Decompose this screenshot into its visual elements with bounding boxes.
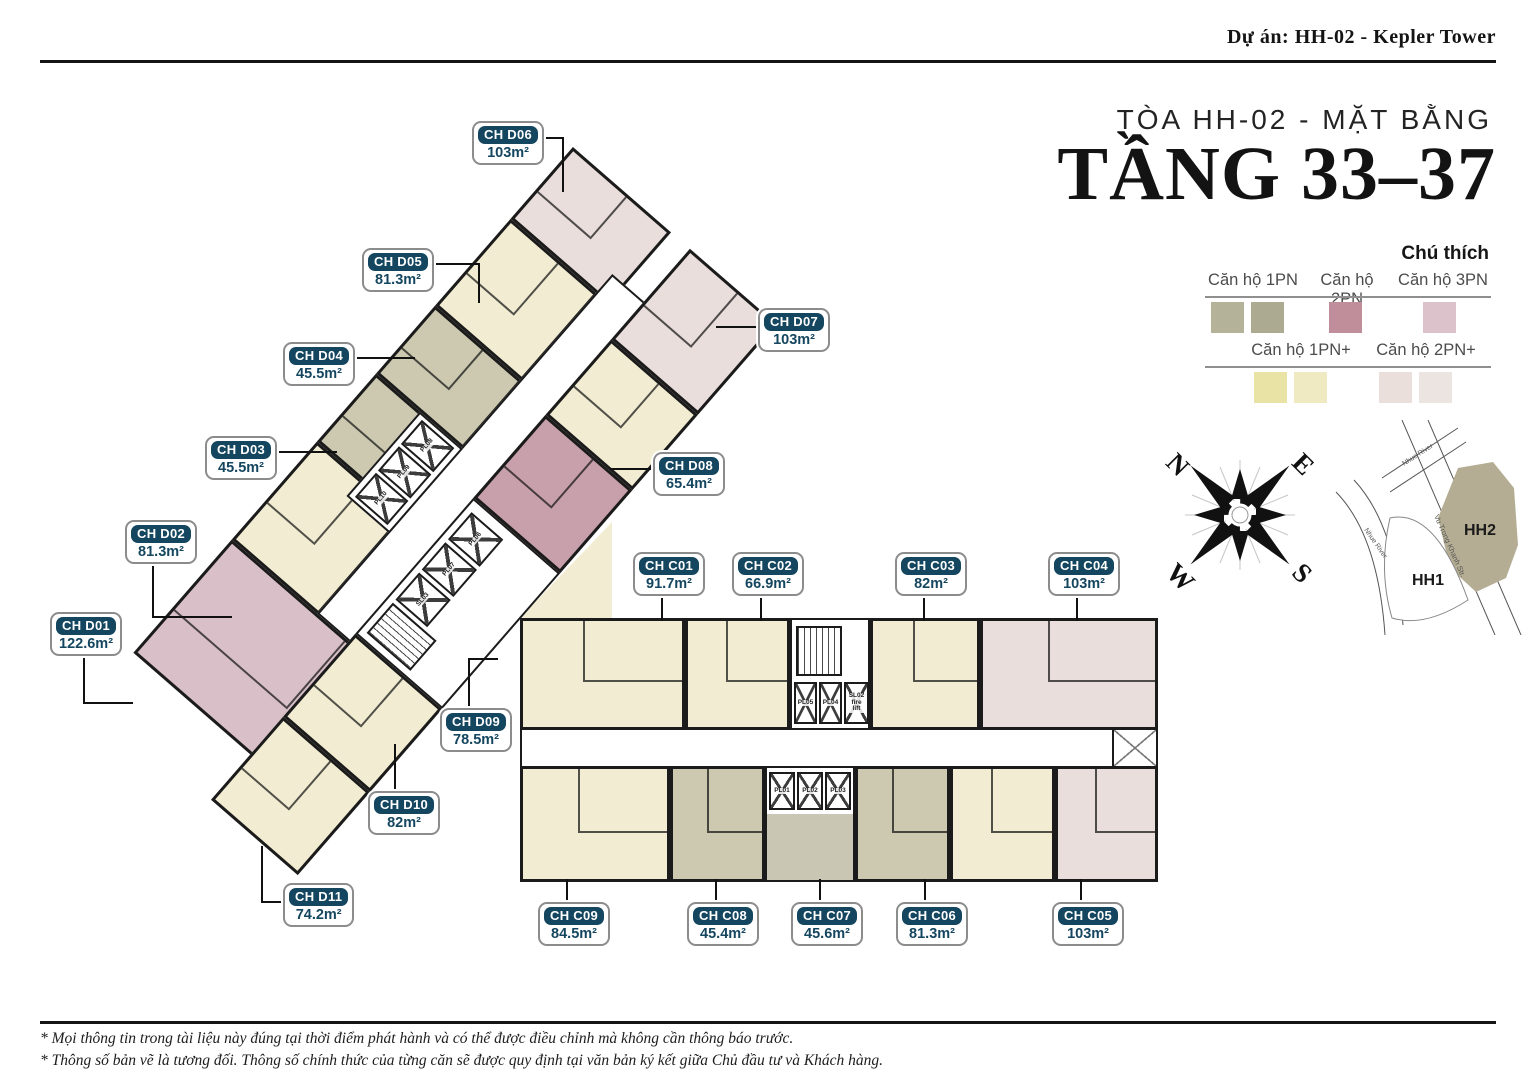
compass-n: N <box>1160 447 1195 482</box>
unit-area: 103m² <box>1058 926 1118 942</box>
header-rule <box>40 60 1496 63</box>
footer-rule <box>40 1021 1496 1024</box>
unit-code: CH D06 <box>478 126 538 144</box>
apartment-c06 <box>950 766 1055 882</box>
footer-note-2: * Thông số bản vẽ là tương đối. Thông số… <box>40 1052 883 1070</box>
legend-heading: Chú thích <box>1401 243 1489 265</box>
entrance-lobby <box>767 814 853 880</box>
unit-label-d08: CH D0865.4m² <box>653 452 725 496</box>
compass-s: S <box>1286 557 1318 589</box>
unit-area: 81.3m² <box>131 544 191 560</box>
unit-code: CH D10 <box>374 796 434 814</box>
c-wing-stairs <box>796 626 842 676</box>
connector-d11 <box>261 846 263 903</box>
unit-area: 103m² <box>478 145 538 161</box>
lift-label: PL02 <box>801 788 819 795</box>
lift-label: PL08 <box>419 437 436 455</box>
c-wing-core-top: PL05 PL04 SL02 fire lift <box>790 618 870 730</box>
swatch-1pn-b <box>1251 302 1284 333</box>
unit-label-c08: CH C0845.4m² <box>687 902 759 946</box>
unit-label-d04: CH D0445.5m² <box>283 342 355 386</box>
connector-d10 <box>394 744 396 792</box>
apartment-c05 <box>1055 766 1158 882</box>
unit-label-c04: CH C04103m² <box>1048 552 1120 596</box>
unit-area: 78.5m² <box>446 732 506 748</box>
compass-e: E <box>1286 447 1320 481</box>
apartment-c08 <box>670 766 765 882</box>
apartment-c03 <box>870 618 980 730</box>
swatch-2pn <box>1329 302 1362 333</box>
unit-label-c05: CH C05103m² <box>1052 902 1124 946</box>
unit-area: 45.6m² <box>797 926 857 942</box>
connector-d11 <box>261 901 285 903</box>
unit-code: CH C08 <box>693 907 753 925</box>
connector-d07 <box>716 326 760 328</box>
lift-label: PL04 <box>822 700 840 707</box>
unit-area: 65.4m² <box>659 476 719 492</box>
connector-c08 <box>715 879 717 903</box>
unit-code: CH D11 <box>289 888 348 906</box>
footer-note-1: * Mọi thông tin trong tài liệu này đúng … <box>40 1030 793 1048</box>
connector-c05 <box>1080 879 1082 903</box>
legend-label-1pn-plus: Căn hộ 1PN+ <box>1243 341 1359 360</box>
legend-divider <box>1205 366 1491 368</box>
swatch-2pn-plus-b <box>1419 372 1452 403</box>
connector-d01 <box>83 702 133 704</box>
unit-code: CH C07 <box>797 907 857 925</box>
unit-area: 122.6m² <box>56 636 116 652</box>
swatch-1pn-plus-b <box>1294 372 1327 403</box>
lift-label: PL06 <box>467 531 484 549</box>
apartment-c09 <box>520 766 670 882</box>
unit-code: CH D09 <box>446 713 506 731</box>
c-wing: PL05 PL04 SL02 fire lift PL01 PL02 PL03 <box>520 618 1158 882</box>
unit-label-d11: CH D1174.2m² <box>283 883 354 927</box>
unit-code: CH D01 <box>56 617 116 635</box>
location-map: HH2 HH1 Vu Trong Khanh Str. Nhue River N… <box>1330 420 1530 635</box>
lift-pl02: PL02 <box>797 772 823 810</box>
c-wing-core-bottom: PL01 PL02 PL03 <box>765 766 855 882</box>
unit-area: 45.4m² <box>693 926 753 942</box>
unit-code: CH C03 <box>901 557 961 575</box>
unit-area: 81.3m² <box>902 926 962 942</box>
unit-area: 82m² <box>901 576 961 592</box>
c-wing-corridor <box>520 728 1158 768</box>
legend-label-3pn: Căn hộ 3PN <box>1395 271 1491 290</box>
unit-code: CH C09 <box>544 907 604 925</box>
compass-rose-icon: N E W S <box>1152 430 1327 600</box>
lift-label: PL03 <box>829 788 847 795</box>
unit-code: CH D02 <box>131 525 191 543</box>
connector-d06 <box>562 137 564 192</box>
unit-label-d02: CH D0281.3m² <box>125 520 197 564</box>
unit-area: 103m² <box>1054 576 1114 592</box>
legend-row-1: Căn hộ 1PN Căn hộ 2PN Căn hộ 3PN <box>1205 271 1491 337</box>
unit-label-d03: CH D0345.5m² <box>205 436 277 480</box>
unit-area: 91.7m² <box>639 576 699 592</box>
lift-label: PL05 <box>797 700 815 707</box>
unit-area: 84.5m² <box>544 926 604 942</box>
unit-area: 45.5m² <box>211 460 271 476</box>
unit-label-d09: CH D0978.5m² <box>440 708 512 752</box>
connector-d05 <box>478 263 480 303</box>
unit-area: 45.5m² <box>289 366 349 382</box>
connector-c07 <box>819 879 821 903</box>
unit-label-c03: CH C0382m² <box>895 552 967 596</box>
lift-label: PL10 <box>373 490 390 508</box>
connector-d04 <box>345 357 415 359</box>
lift-pl05: PL05 <box>794 682 817 724</box>
swatch-3pn <box>1423 302 1456 333</box>
swatch-2pn-plus-a <box>1379 372 1412 403</box>
unit-code: CH C06 <box>902 907 962 925</box>
lift-pl03: PL03 <box>825 772 851 810</box>
legend-divider <box>1205 296 1491 298</box>
connector-d08 <box>610 468 655 470</box>
unit-code: CH D08 <box>659 457 719 475</box>
unit-label-d10: CH D1082m² <box>368 791 440 835</box>
compass-w: W <box>1160 557 1200 597</box>
unit-area: 81.3m² <box>368 272 428 288</box>
unit-label-d05: CH D0581.3m² <box>362 248 434 292</box>
connector-d03 <box>267 451 337 453</box>
lift-label: PL01 <box>773 788 791 795</box>
lift-label: SL03 <box>415 591 432 609</box>
lift-label: PL09 <box>396 464 413 482</box>
unit-code: CH D05 <box>368 253 428 271</box>
swatch-1pn-a <box>1211 302 1244 333</box>
lift-sl02-fire: SL02 fire lift <box>844 682 869 724</box>
lift-pl04: PL04 <box>819 682 842 724</box>
unit-label-c07: CH C0745.6m² <box>791 902 863 946</box>
unit-code: CH C04 <box>1054 557 1114 575</box>
map-label-hh2: HH2 <box>1464 522 1496 539</box>
unit-code: CH D04 <box>289 347 349 365</box>
lift-pl01: PL01 <box>769 772 795 810</box>
connector-c06 <box>924 879 926 903</box>
unit-area: 74.2m² <box>289 907 348 923</box>
unit-code: CH D07 <box>764 313 824 331</box>
map-river-label-1: Nhue River <box>1401 442 1435 467</box>
project-name: Dự án: HH-02 - Kepler Tower <box>1227 26 1496 49</box>
lift-label: SL02 fire lift <box>846 693 867 713</box>
unit-area: 82m² <box>374 815 434 831</box>
apartment-c04 <box>980 618 1158 730</box>
unit-label-d06: CH D06103m² <box>472 121 544 165</box>
connector-d09 <box>468 658 470 710</box>
apartment-c07 <box>855 766 950 882</box>
connector-c09 <box>566 879 568 903</box>
east-void <box>1112 728 1158 768</box>
connector-d01 <box>83 650 85 704</box>
unit-code: CH D03 <box>211 441 271 459</box>
unit-label-c09: CH C0984.5m² <box>538 902 610 946</box>
swatch-1pn-plus-a <box>1254 372 1287 403</box>
lift-label: PL07 <box>441 561 458 579</box>
connector-d02 <box>152 616 232 618</box>
unit-code: CH C02 <box>738 557 798 575</box>
unit-area: 103m² <box>764 332 824 348</box>
connector-d02 <box>152 556 154 618</box>
legend-label-1pn: Căn hộ 1PN <box>1205 271 1301 290</box>
unit-code: CH C05 <box>1058 907 1118 925</box>
floor-title: TẦNG 33–37 <box>1057 136 1496 212</box>
legend-row-2: Căn hộ 1PN+ Căn hộ 2PN+ <box>1205 341 1491 407</box>
unit-label-d07: CH D07103m² <box>758 308 830 352</box>
legend-label-2pn-plus: Căn hộ 2PN+ <box>1368 341 1484 360</box>
unit-label-d01: CH D01122.6m² <box>50 612 122 656</box>
unit-label-c02: CH C0266.9m² <box>732 552 804 596</box>
map-label-hh1: HH1 <box>1412 572 1444 589</box>
unit-area: 66.9m² <box>738 576 798 592</box>
connector-d09 <box>468 658 498 660</box>
unit-label-c01: CH C0191.7m² <box>633 552 705 596</box>
floorplan-page: Dự án: HH-02 - Kepler Tower TÒA HH-02 - … <box>0 0 1536 1086</box>
apartment-c01 <box>520 618 685 730</box>
apartment-c02 <box>685 618 790 730</box>
unit-code: CH C01 <box>639 557 699 575</box>
unit-label-c06: CH C0681.3m² <box>896 902 968 946</box>
